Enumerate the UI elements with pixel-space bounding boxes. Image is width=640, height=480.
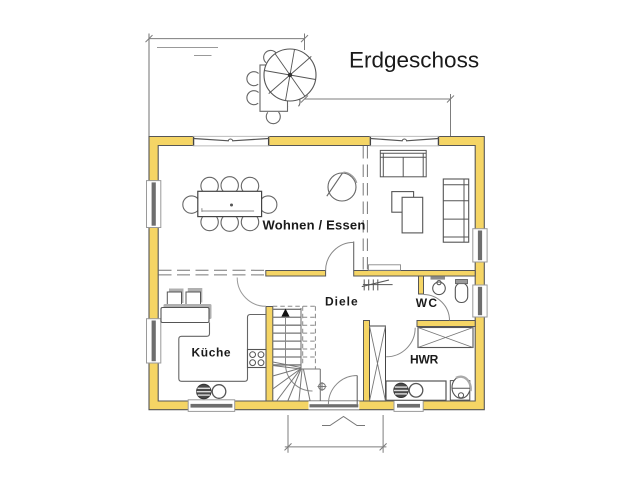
svg-text:Wohnen / Essen: Wohnen / Essen	[263, 218, 366, 233]
svg-text:Erdgeschoss: Erdgeschoss	[349, 47, 479, 72]
svg-text:WC: WC	[416, 296, 438, 310]
svg-text:HWR: HWR	[410, 353, 439, 367]
svg-text:Küche: Küche	[192, 345, 232, 359]
svg-text:Diele: Diele	[325, 295, 359, 309]
